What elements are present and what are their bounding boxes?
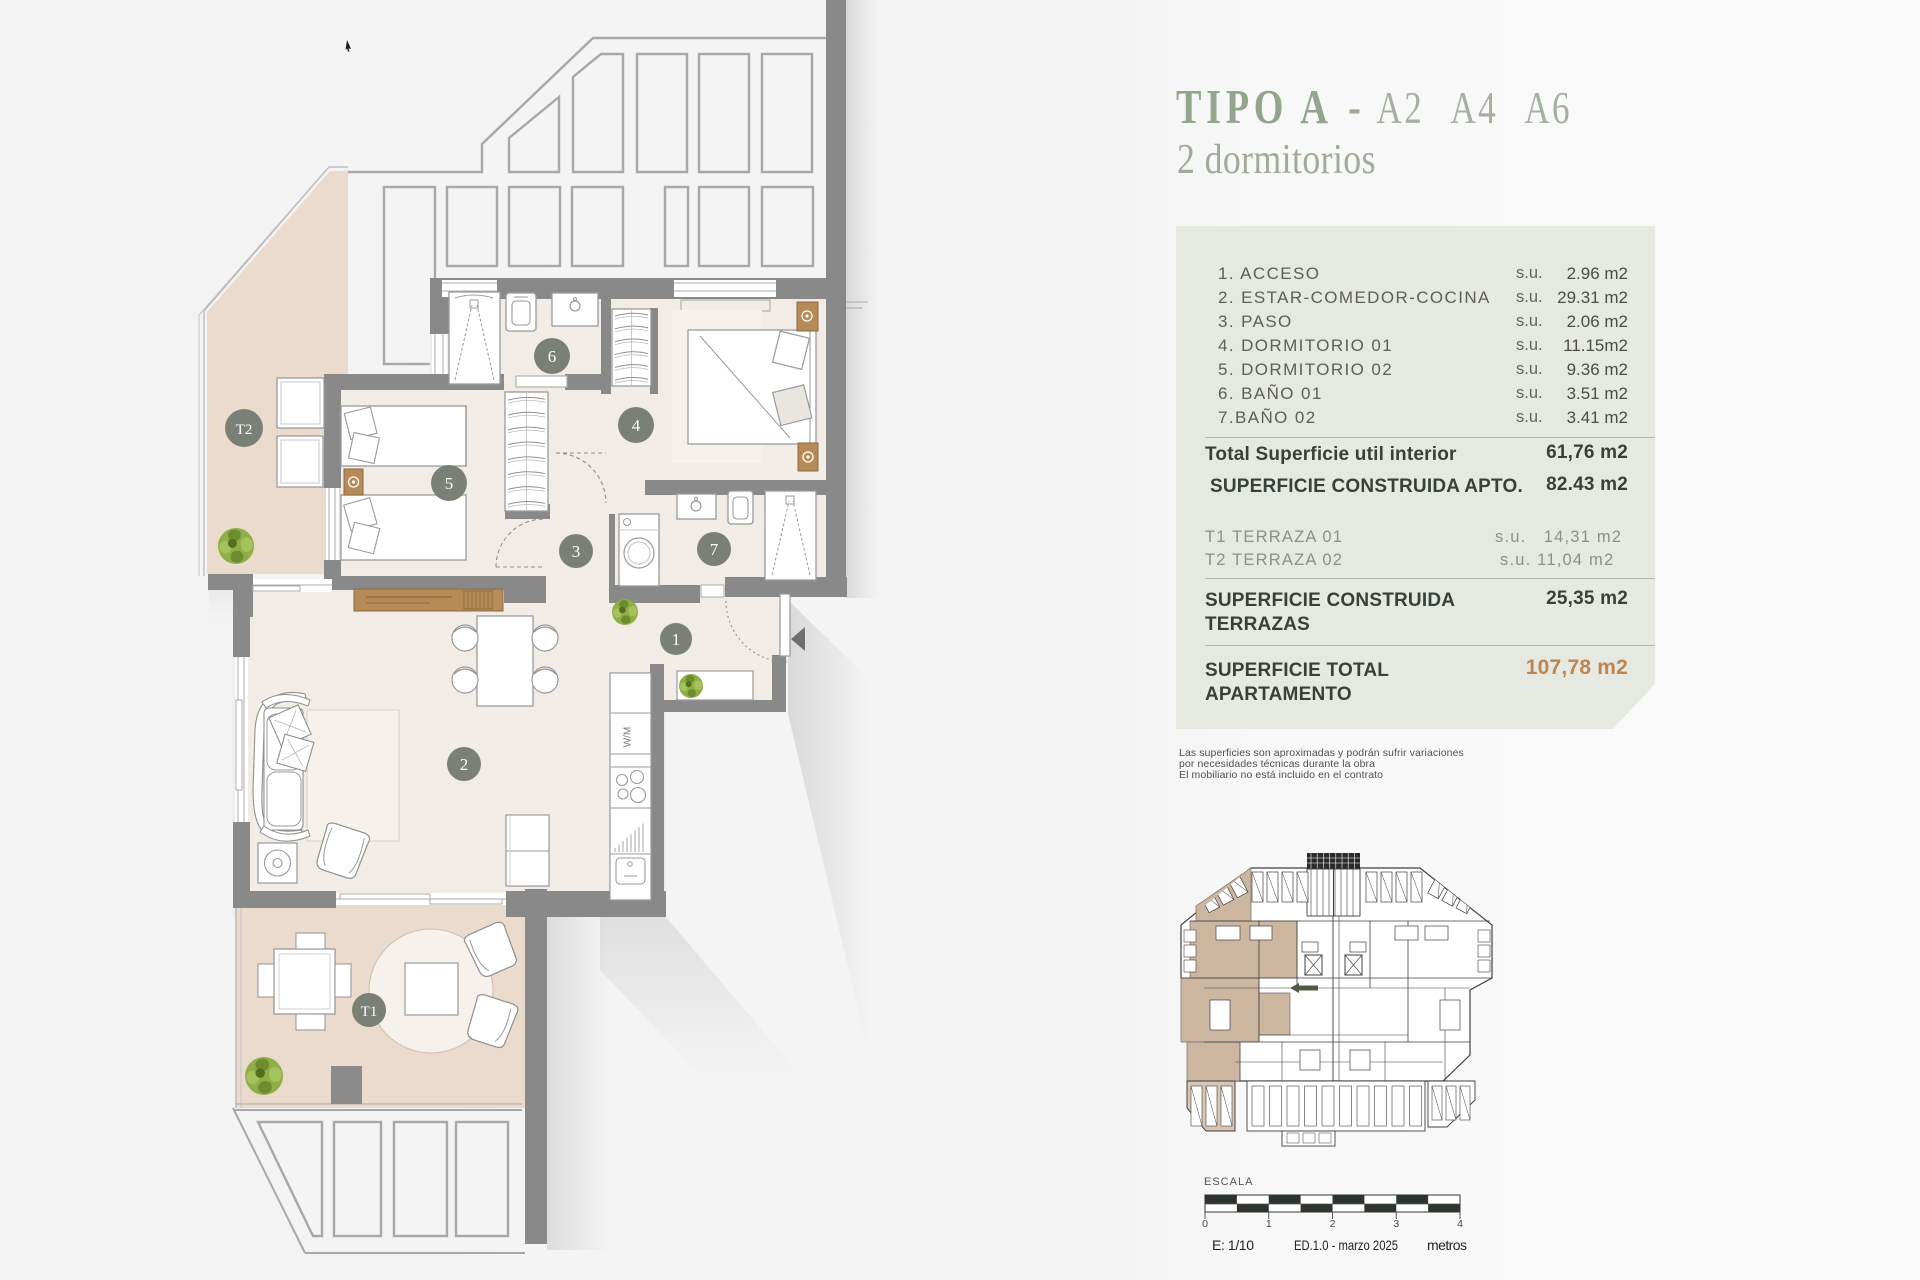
- svg-text:ED.1.0 - marzo 2025: ED.1.0 - marzo 2025: [1294, 1237, 1398, 1253]
- svg-text:ESCALA: ESCALA: [1204, 1176, 1253, 1188]
- svg-text:1: 1: [1266, 1218, 1272, 1230]
- svg-text:T1: T1: [361, 1004, 378, 1020]
- svg-text:4: 4: [1457, 1218, 1463, 1230]
- svg-text:T2: T2: [236, 422, 253, 438]
- svg-text:metros: metros: [1427, 1237, 1467, 1253]
- svg-text:7: 7: [710, 540, 719, 559]
- svg-text:2: 2: [460, 755, 469, 774]
- svg-text:0: 0: [1202, 1218, 1208, 1230]
- svg-text:3: 3: [572, 542, 581, 561]
- svg-text:W/M: W/M: [623, 727, 634, 748]
- svg-text:2: 2: [1330, 1218, 1336, 1230]
- svg-text:6: 6: [548, 347, 557, 366]
- svg-text:5: 5: [445, 474, 454, 493]
- svg-text:1: 1: [672, 630, 681, 649]
- svg-text:3: 3: [1393, 1218, 1399, 1230]
- svg-text:E: 1/10: E: 1/10: [1212, 1237, 1254, 1253]
- svg-text:4: 4: [632, 416, 641, 435]
